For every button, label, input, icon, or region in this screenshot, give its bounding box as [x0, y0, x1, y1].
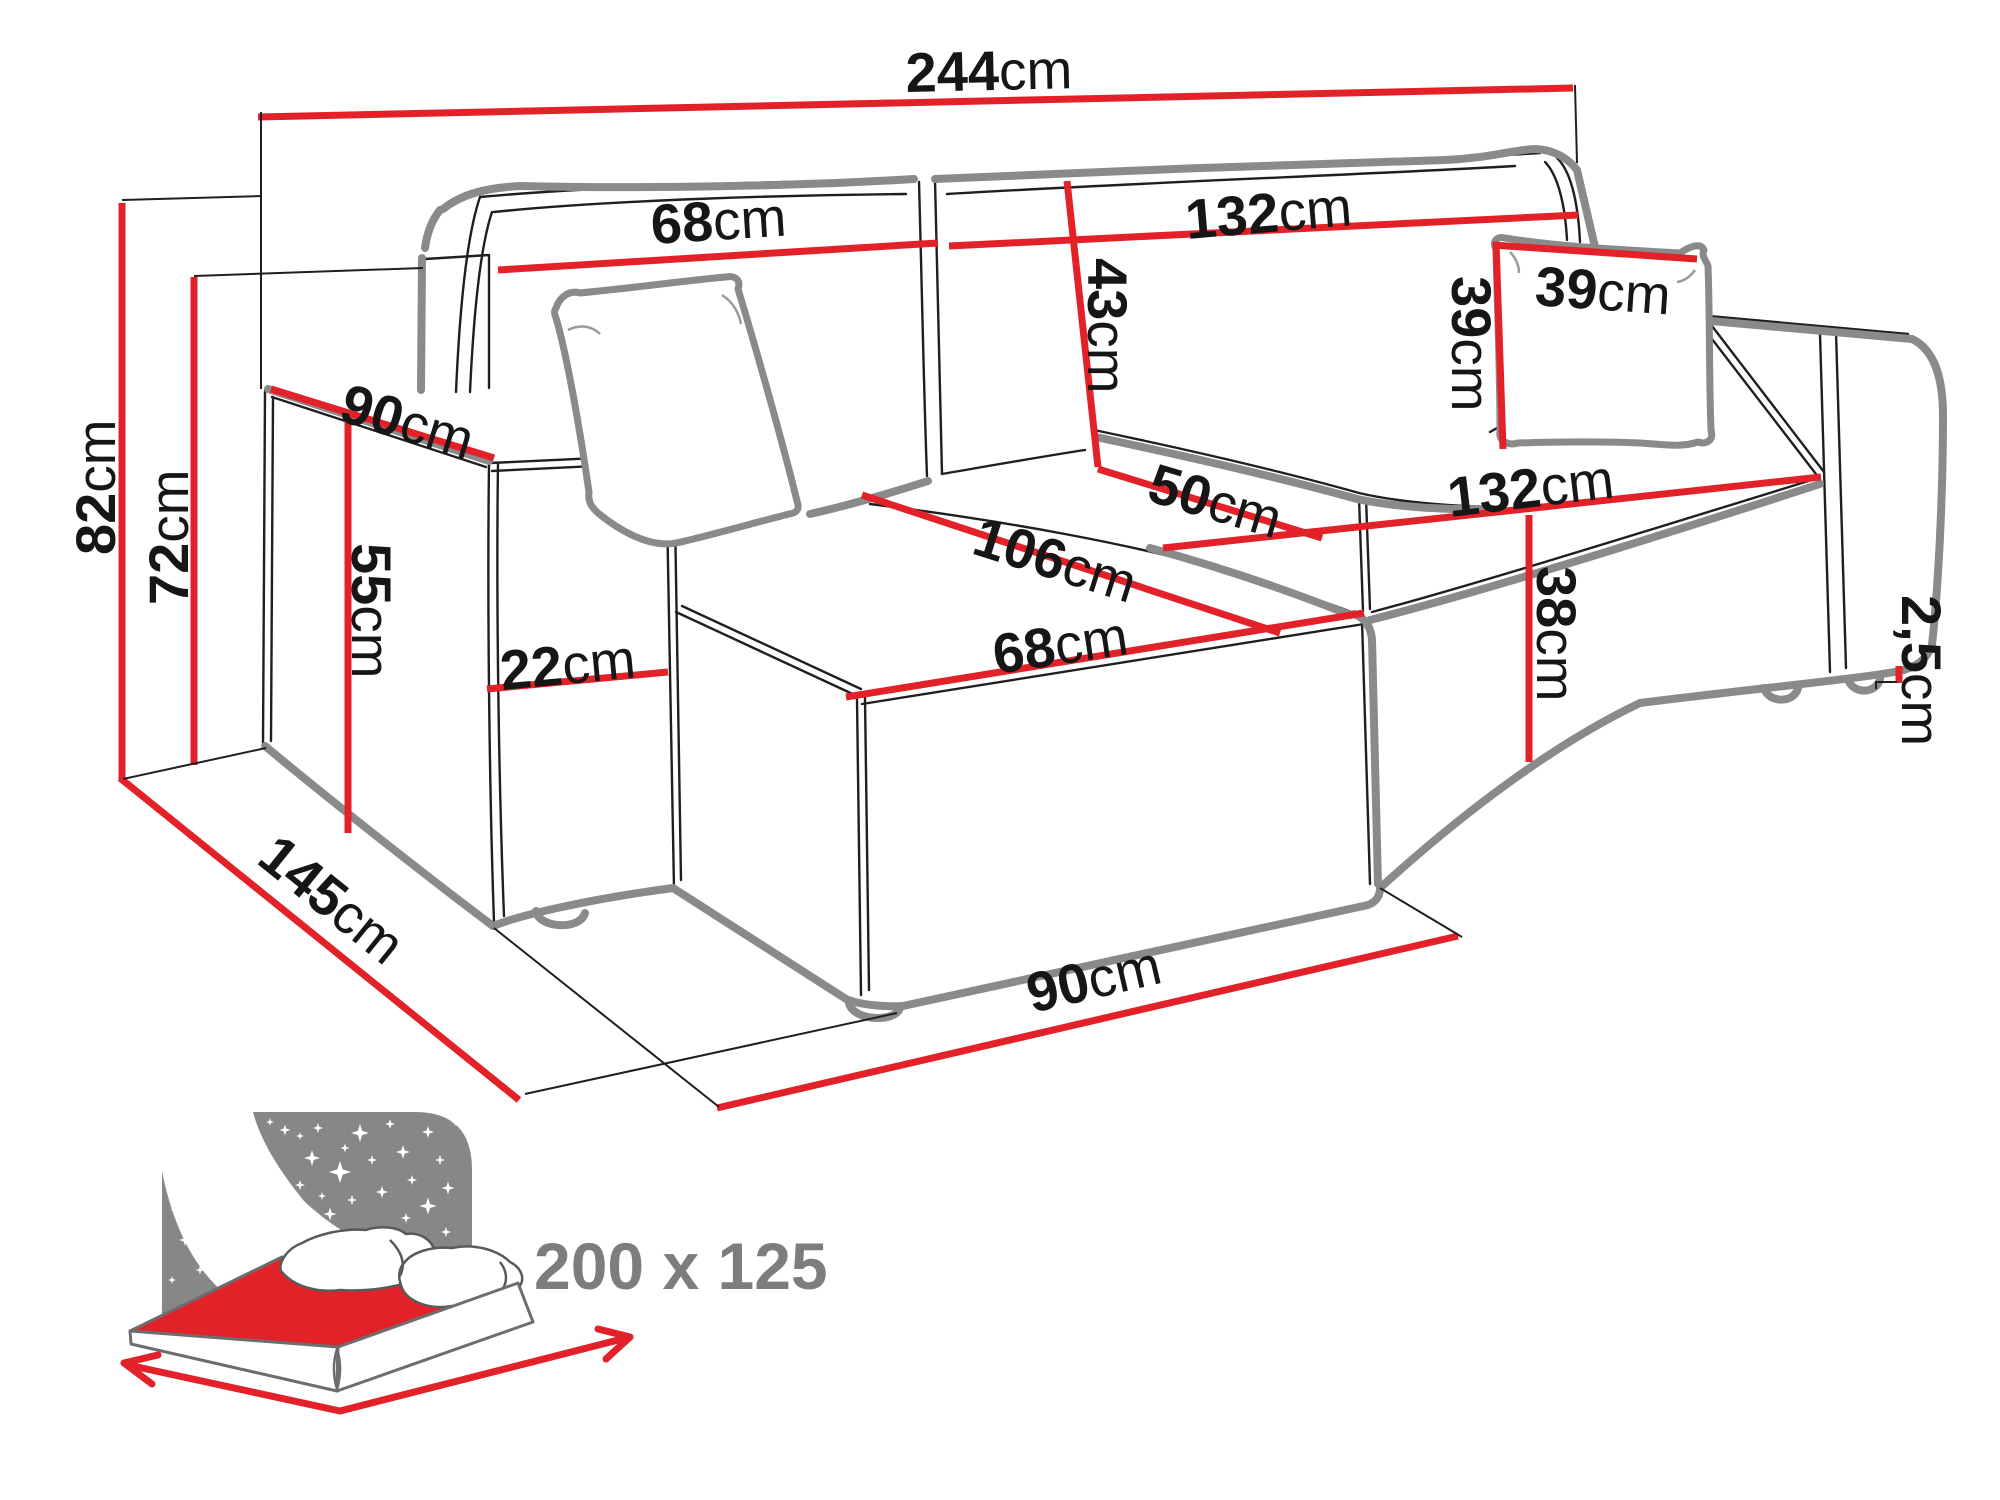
svg-text:132cm: 132cm [1444, 447, 1617, 529]
svg-text:72cm: 72cm [137, 469, 200, 605]
svg-text:200 x 125: 200 x 125 [534, 1229, 828, 1303]
svg-text:68cm: 68cm [649, 185, 788, 256]
svg-text:39cm: 39cm [1440, 276, 1503, 412]
svg-text:82cm: 82cm [64, 419, 127, 555]
svg-text:39cm: 39cm [1533, 254, 1673, 326]
svg-text:38cm: 38cm [1525, 566, 1588, 702]
svg-text:90cm: 90cm [333, 371, 481, 471]
svg-text:43cm: 43cm [1076, 258, 1139, 394]
svg-text:106cm: 106cm [966, 504, 1144, 614]
svg-text:2,5cm: 2,5cm [1890, 595, 1953, 746]
svg-text:132cm: 132cm [1183, 174, 1354, 251]
svg-text:244cm: 244cm [905, 37, 1073, 104]
svg-text:55cm: 55cm [340, 543, 403, 679]
svg-text:22cm: 22cm [497, 626, 638, 701]
svg-text:68cm: 68cm [988, 603, 1132, 686]
